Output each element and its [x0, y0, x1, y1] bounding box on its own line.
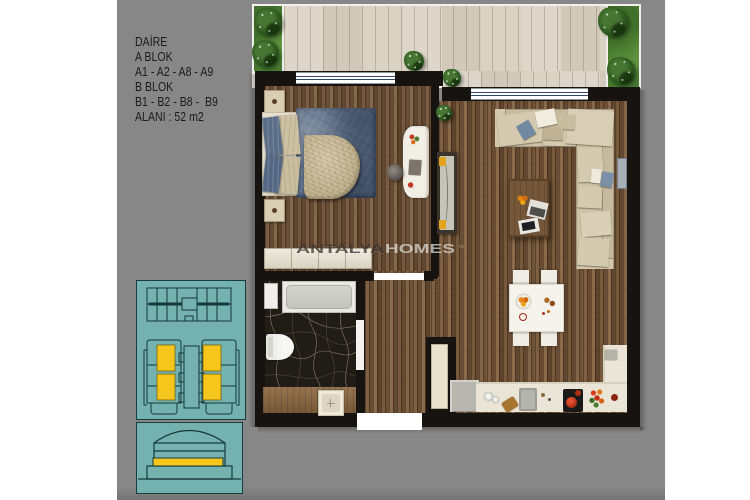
svg-text:ANTALYA: ANTALYA	[296, 242, 385, 256]
svg-text:TM: TM	[458, 244, 465, 249]
svg-text:WWW.ANTALYAHOMES.COM.TR: WWW.ANTALYAHOMES.COM.TR	[316, 256, 370, 260]
svg-text:HOMES: HOMES	[385, 241, 455, 256]
